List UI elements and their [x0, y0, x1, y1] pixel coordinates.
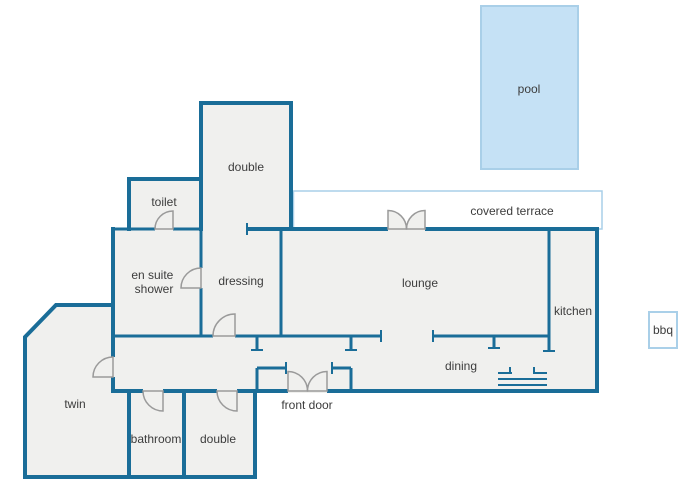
dressing-label: dressing: [218, 274, 263, 288]
en-suite-shower-label: en suite shower: [131, 268, 176, 296]
kitchen-label: kitchen: [554, 304, 592, 318]
covered-terrace-label: covered terrace: [470, 204, 554, 218]
double-top-label: double: [228, 160, 264, 174]
toilet-label: toilet: [151, 195, 177, 209]
dining-label: dining: [445, 359, 477, 373]
front-door-label: front door: [281, 398, 332, 412]
bbq-label: bbq: [653, 323, 673, 337]
double-bottom-label: double: [200, 432, 236, 446]
bathroom-label: bathroom: [131, 432, 182, 446]
floor-plan-canvas: pool covered terrace double toilet en su…: [0, 0, 700, 500]
covered-terrace-area: [294, 191, 603, 229]
floor-plan-page: pool covered terrace double toilet en su…: [0, 0, 700, 500]
lounge-label: lounge: [402, 276, 438, 290]
twin-label: twin: [64, 397, 85, 411]
pool-label: pool: [518, 82, 541, 96]
